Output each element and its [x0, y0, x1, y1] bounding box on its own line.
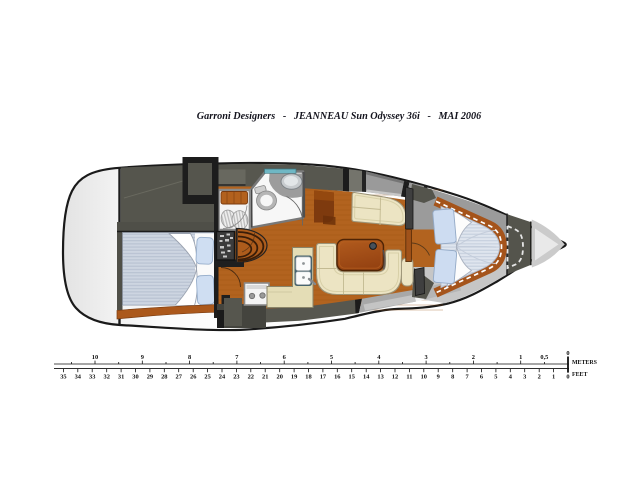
- svg-text:10: 10: [92, 354, 98, 361]
- svg-text:METERS: METERS: [572, 360, 598, 366]
- svg-text:1: 1: [519, 354, 522, 361]
- svg-text:23: 23: [233, 374, 239, 381]
- svg-text:2: 2: [472, 354, 475, 361]
- svg-text:19: 19: [291, 374, 297, 381]
- svg-text:5: 5: [494, 374, 497, 381]
- svg-text:9: 9: [437, 374, 440, 381]
- svg-text:9: 9: [141, 354, 144, 361]
- svg-text:3: 3: [523, 374, 526, 381]
- svg-text:3: 3: [424, 354, 427, 361]
- svg-text:5: 5: [330, 354, 333, 361]
- svg-text:10: 10: [421, 374, 427, 381]
- svg-text:14: 14: [363, 374, 370, 381]
- svg-text:24: 24: [219, 374, 226, 381]
- svg-text:0,5: 0,5: [540, 354, 548, 361]
- svg-text:21: 21: [262, 374, 268, 381]
- svg-text:28: 28: [161, 374, 167, 381]
- svg-text:1: 1: [552, 374, 555, 381]
- svg-text:35: 35: [60, 374, 66, 381]
- svg-text:18: 18: [305, 374, 311, 381]
- svg-text:32: 32: [104, 374, 110, 381]
- svg-text:20: 20: [277, 374, 283, 381]
- svg-text:Garroni Designers - JEANNE: Garroni Designers - JEANNEAU Sun Odyssey…: [197, 111, 482, 122]
- svg-text:0: 0: [566, 374, 569, 381]
- svg-text:29: 29: [147, 374, 153, 381]
- svg-text:33: 33: [89, 374, 95, 381]
- svg-text:26: 26: [190, 374, 197, 381]
- svg-text:17: 17: [320, 374, 327, 381]
- svg-text:8: 8: [451, 374, 454, 381]
- svg-text:FEET: FEET: [572, 372, 587, 378]
- svg-text:12: 12: [392, 374, 398, 381]
- svg-text:0: 0: [566, 350, 569, 357]
- svg-text:15: 15: [349, 374, 355, 381]
- svg-text:34: 34: [75, 374, 82, 381]
- svg-text:25: 25: [204, 374, 210, 381]
- svg-text:11: 11: [406, 374, 412, 381]
- svg-text:8: 8: [188, 354, 191, 361]
- svg-text:13: 13: [377, 374, 383, 381]
- svg-text:16: 16: [334, 374, 341, 381]
- svg-text:22: 22: [248, 374, 254, 381]
- svg-text:27: 27: [176, 374, 183, 381]
- svg-text:31: 31: [118, 374, 124, 381]
- svg-text:2: 2: [538, 374, 541, 381]
- svg-text:30: 30: [132, 374, 138, 381]
